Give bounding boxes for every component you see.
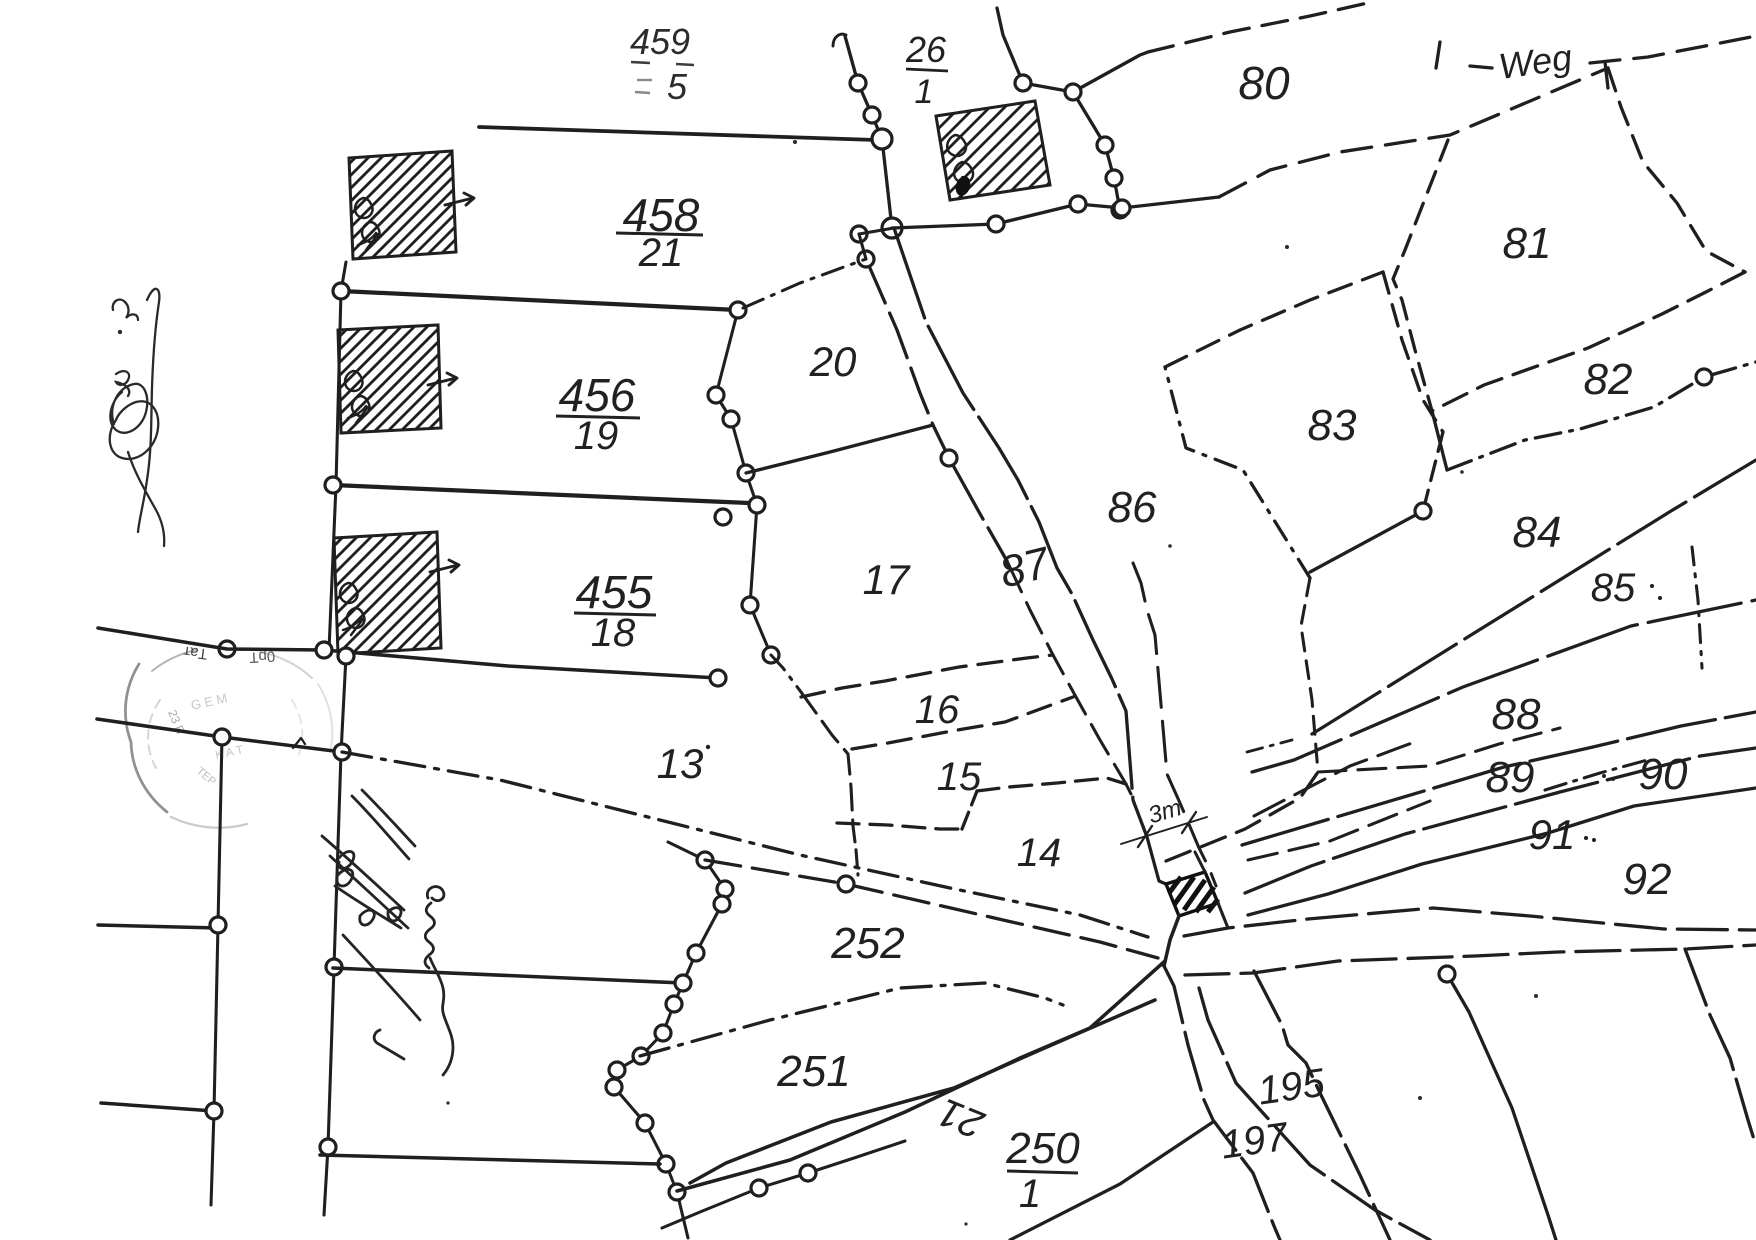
svg-text:14: 14	[1017, 831, 1062, 875]
svg-text:252: 252	[830, 919, 904, 968]
svg-text:90: 90	[1639, 750, 1688, 799]
svg-text:80: 80	[1238, 57, 1290, 109]
svg-text:195: 195	[1255, 1061, 1328, 1114]
svg-text:82: 82	[1584, 355, 1633, 404]
svg-text:16: 16	[915, 688, 960, 732]
svg-text:21: 21	[638, 231, 684, 275]
svg-text:89: 89	[1486, 753, 1535, 802]
svg-text:85: 85	[1591, 566, 1636, 610]
svg-text:13: 13	[657, 740, 704, 787]
svg-text:1: 1	[1019, 1172, 1041, 1216]
svg-text:86: 86	[1108, 483, 1157, 532]
svg-text:88: 88	[1492, 690, 1541, 739]
svg-text:17: 17	[863, 556, 911, 603]
svg-text:251: 251	[776, 1047, 850, 1096]
svg-text:92: 92	[1623, 855, 1672, 904]
svg-text:81: 81	[1503, 219, 1552, 268]
svg-text:84: 84	[1513, 508, 1562, 557]
svg-text:250: 250	[1005, 1124, 1080, 1173]
svg-text:18: 18	[591, 611, 636, 655]
svg-text:1: 1	[915, 73, 934, 111]
svg-text:19: 19	[574, 414, 619, 458]
svg-text:26: 26	[905, 29, 947, 70]
svg-text:459: 459	[630, 21, 690, 62]
svg-text:5: 5	[667, 66, 688, 107]
svg-text:20: 20	[809, 338, 857, 385]
svg-text:83: 83	[1308, 401, 1357, 450]
svg-text:91: 91	[1529, 811, 1576, 858]
svg-text:15: 15	[937, 755, 982, 799]
